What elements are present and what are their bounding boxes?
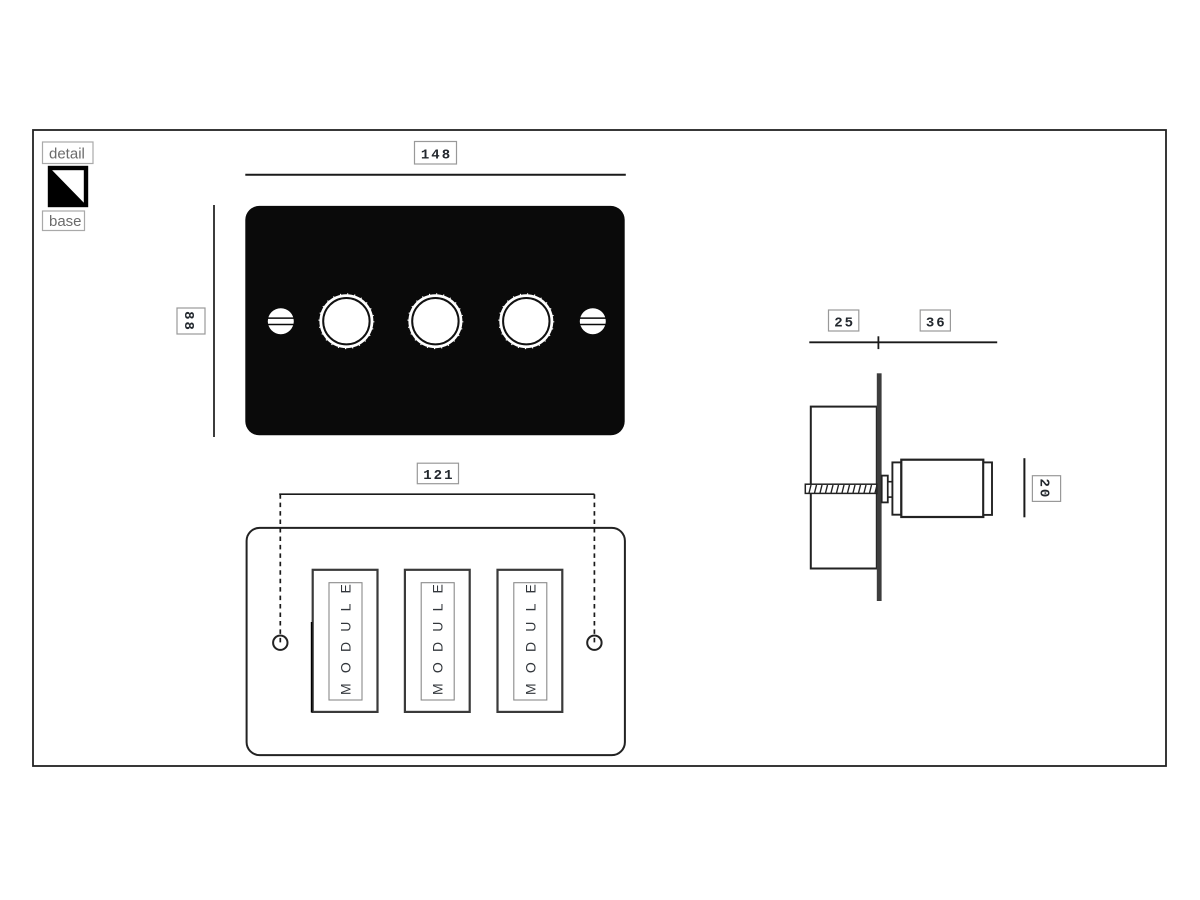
svg-text:20: 20 bbox=[1036, 478, 1052, 499]
svg-text:121: 121 bbox=[423, 468, 454, 484]
svg-text:base: base bbox=[49, 213, 82, 230]
svg-text:88: 88 bbox=[180, 311, 196, 332]
svg-text:MODULE: MODULE bbox=[522, 574, 538, 695]
svg-text:25: 25 bbox=[834, 316, 855, 332]
svg-text:detail: detail bbox=[49, 146, 85, 163]
svg-text:MODULE: MODULE bbox=[430, 574, 446, 695]
svg-text:36: 36 bbox=[926, 316, 947, 332]
svg-text:MODULE: MODULE bbox=[338, 574, 354, 695]
svg-text:148: 148 bbox=[421, 148, 452, 164]
